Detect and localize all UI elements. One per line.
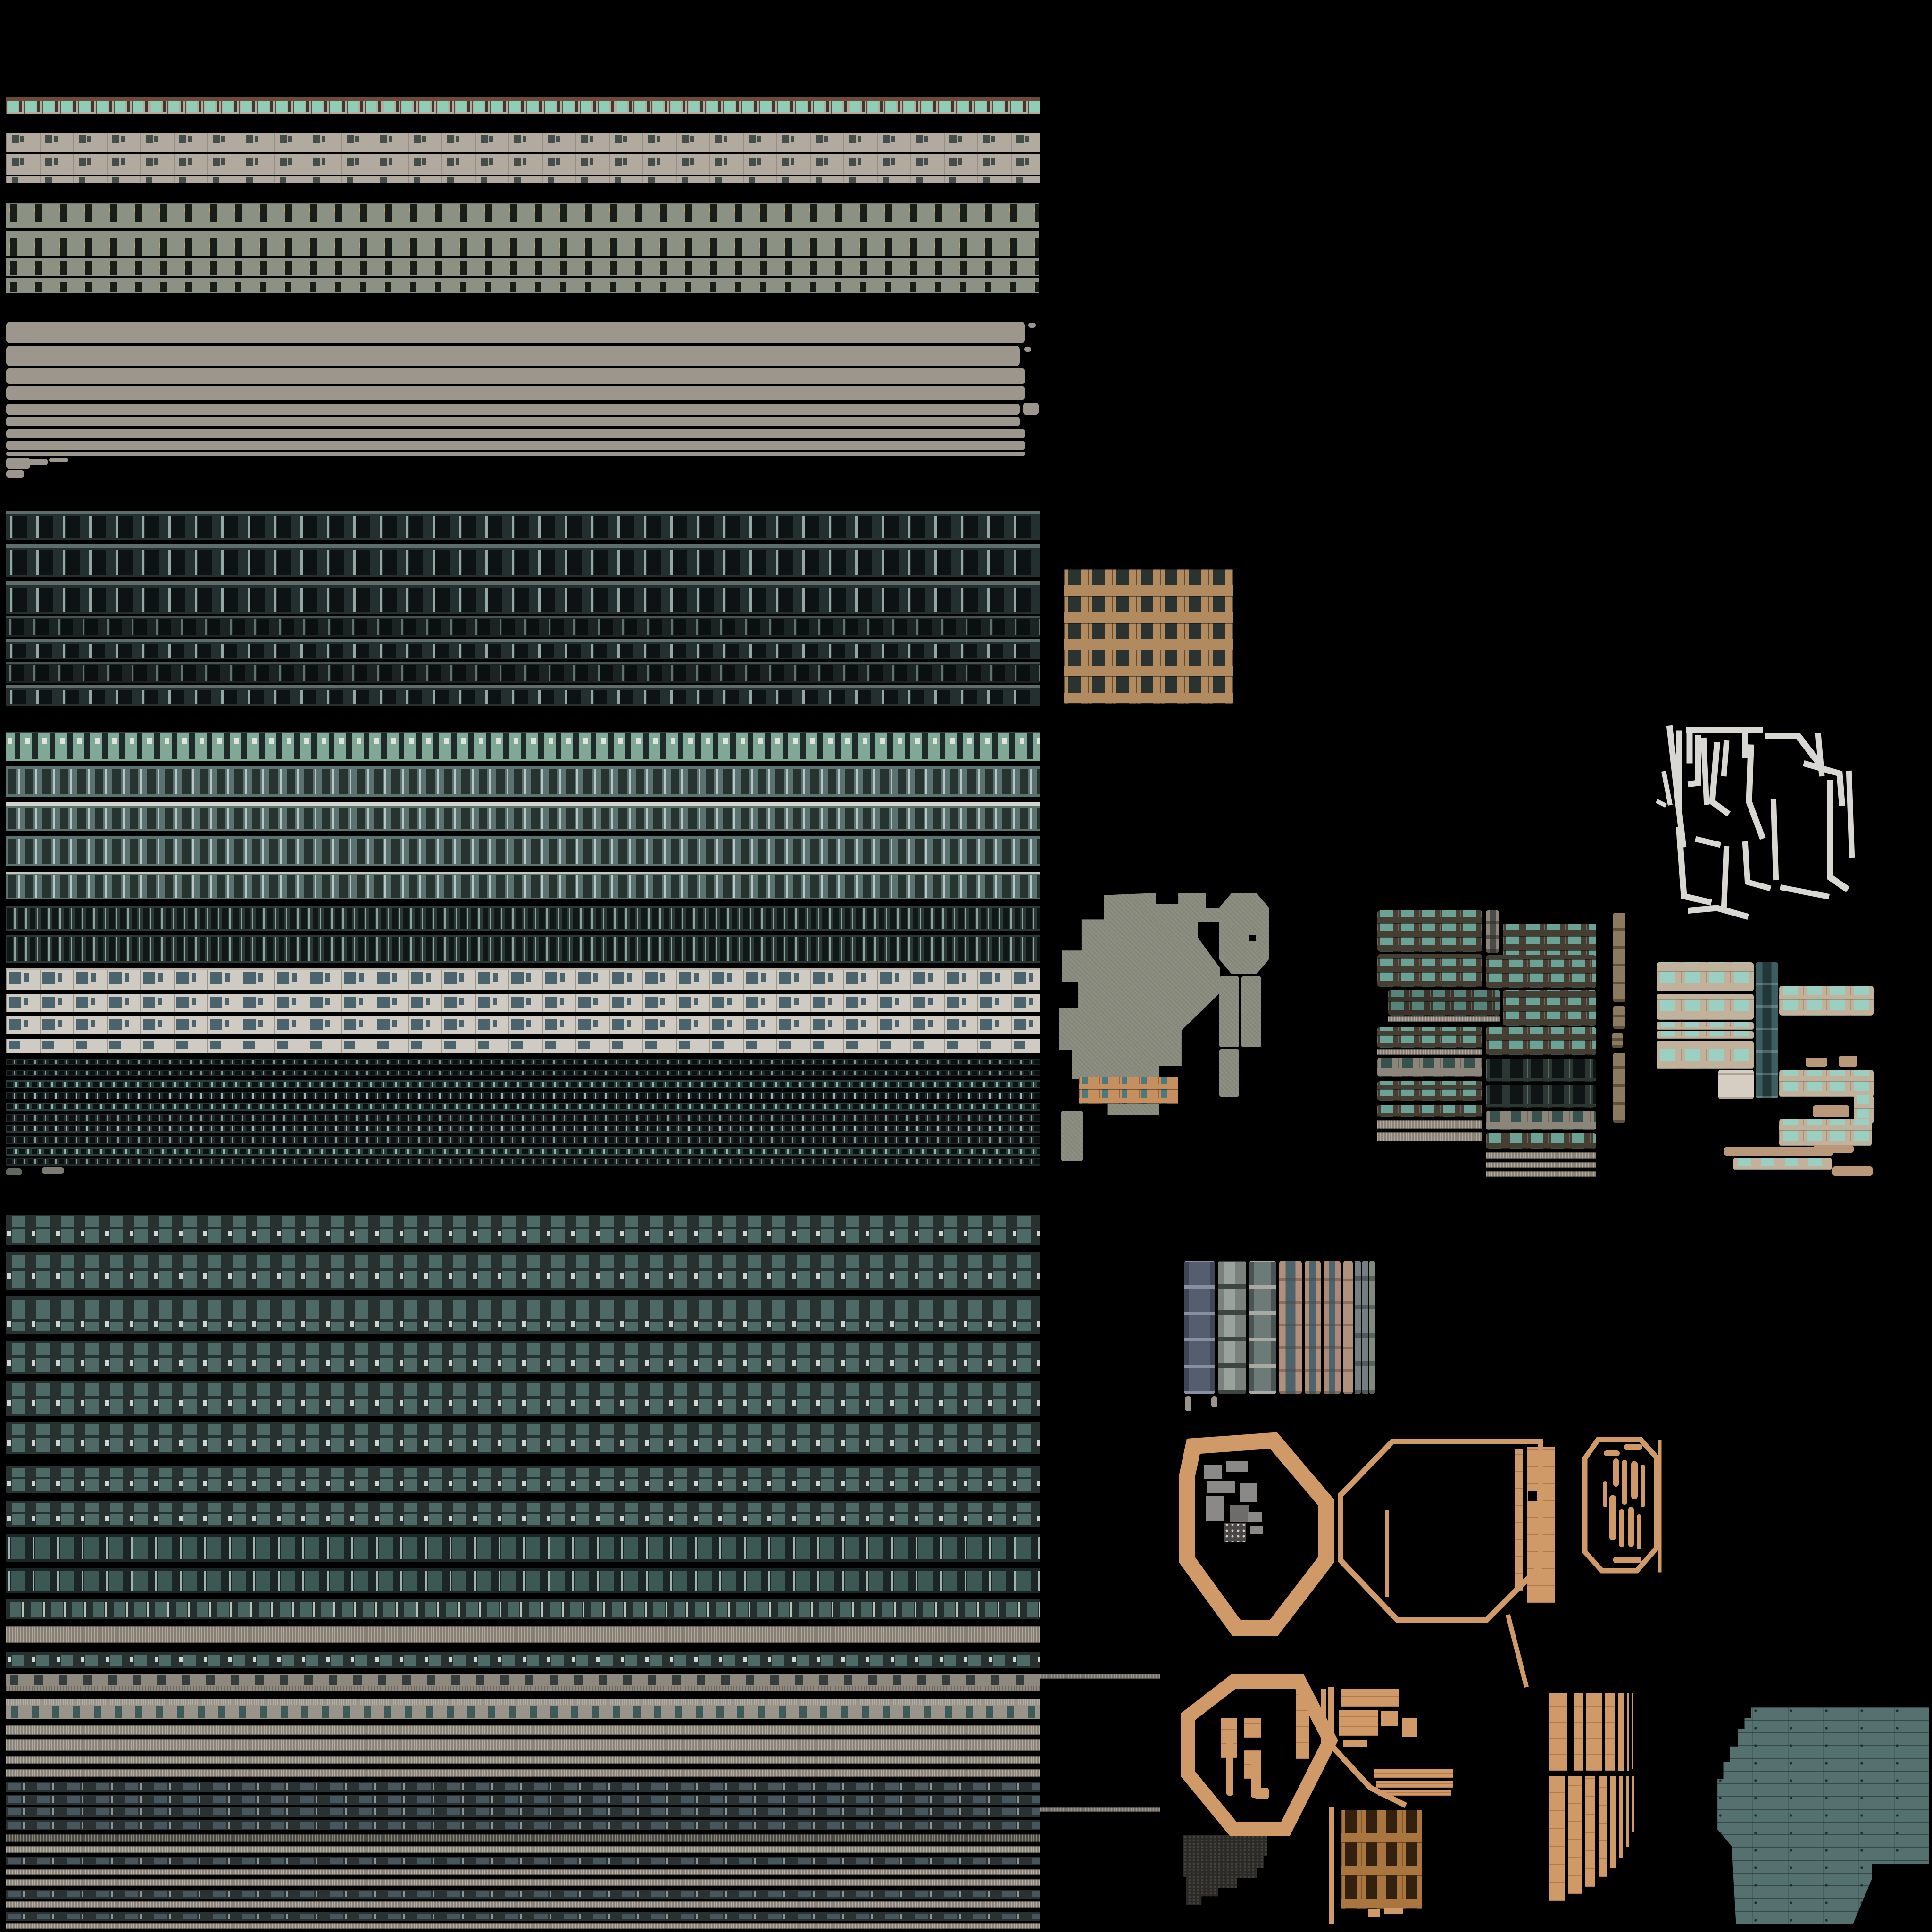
uv-scribble-22 [1783,888,1826,896]
uv-scribble-17 [1698,840,1718,844]
roof-outline-big-octagon [1187,1441,1326,1628]
uv-scribble-8 [1724,743,1726,774]
texture-atlas [0,0,1932,1932]
uv-scribble-24 [1658,802,1664,805]
uv-scribble-18 [1691,908,1745,916]
uv-scribble-15 [1849,774,1852,855]
atlas-outline-overlay [0,0,1932,1932]
uv-scribble-11 [1768,736,1817,760]
uv-scribble-10 [1749,748,1762,836]
roof-outline-corner [1331,1690,1403,1804]
roof-outline-diag [1508,1617,1526,1685]
roof-outline-hexagon [1188,1682,1330,1829]
uv-scribble-6 [1704,741,1707,802]
uv-scribble-19 [1724,849,1726,906]
uv-scribble-23 [1664,774,1670,803]
uv-scribble-13 [1807,764,1842,803]
roof-outline-small-octagon [1585,1440,1657,1571]
uv-scribble-20 [1745,844,1768,888]
uv-scribble-21 [1774,802,1776,877]
roof-outline-right-octagon [1341,1441,1541,1620]
